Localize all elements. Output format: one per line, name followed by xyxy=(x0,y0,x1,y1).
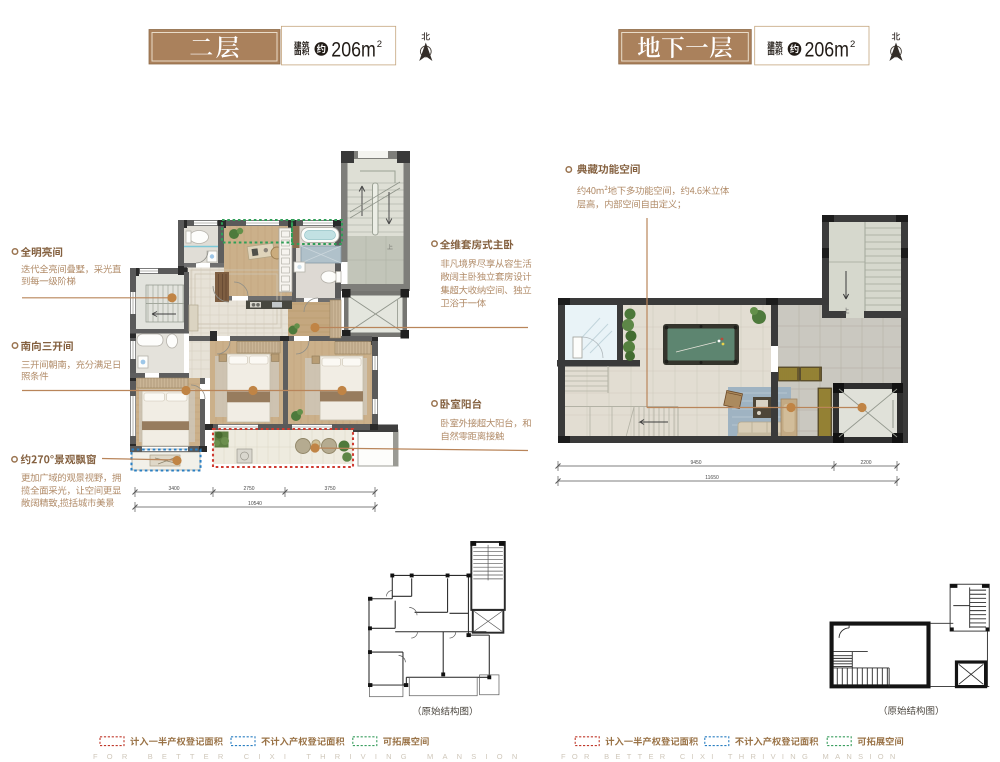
svg-text:9450: 9450 xyxy=(690,460,701,466)
svg-text:FOR BETTER CIXI THRIVING MANSI: FOR BETTER CIXI THRIVING MANSION xyxy=(93,752,526,761)
svg-text:2200: 2200 xyxy=(860,460,871,466)
svg-text:3400: 3400 xyxy=(168,486,179,492)
svg-text:2: 2 xyxy=(850,39,855,50)
svg-text:11650: 11650 xyxy=(705,475,719,481)
svg-text:2: 2 xyxy=(377,39,382,50)
svg-text:206m: 206m xyxy=(805,38,850,61)
svg-text:10540: 10540 xyxy=(248,501,262,507)
svg-text:206m: 206m xyxy=(331,38,376,61)
svg-text:3750: 3750 xyxy=(324,486,335,492)
svg-text:FOR BETTER CIXI THRIVING MANSI: FOR BETTER CIXI THRIVING MANSION xyxy=(561,752,902,761)
svg-text:2750: 2750 xyxy=(243,486,254,492)
